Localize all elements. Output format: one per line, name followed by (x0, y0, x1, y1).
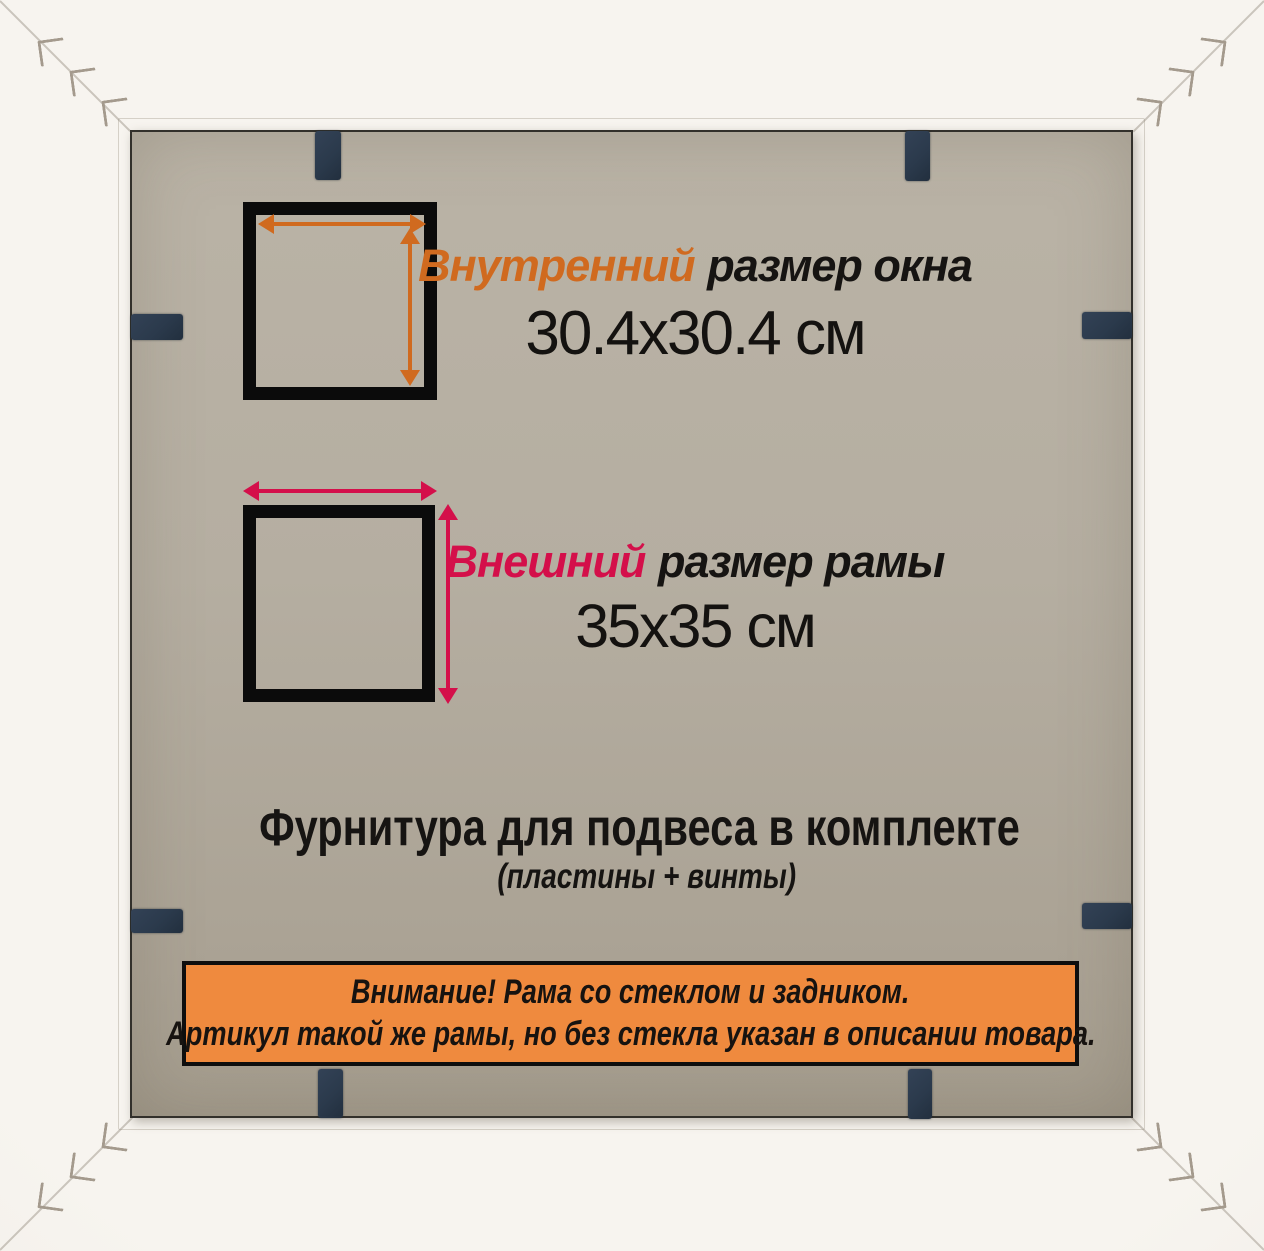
v-nail-staple-icon (1197, 1182, 1226, 1211)
v-nail-staple-icon (1197, 37, 1226, 66)
frame-clip-icon (905, 131, 930, 181)
v-nail-staple-icon (37, 37, 66, 66)
inner-size-label-rest: размер окна (707, 240, 972, 291)
attention-banner-line1: Внимание! Рама со стеклом и задником. (281, 974, 979, 1011)
v-nail-staple-icon (1165, 67, 1194, 96)
frame-clip-icon (908, 1069, 932, 1119)
outer-size-label: Внешнийразмер рамы (330, 537, 1060, 587)
attention-banner-line2: Артикул такой же рамы, но без стекла ука… (50, 1016, 1212, 1053)
outer-size-label-highlight: Внешний (446, 536, 646, 587)
v-nail-staple-icon (69, 67, 98, 96)
outer-size-value: 35x35 см (330, 596, 1060, 657)
frame-clip-icon (131, 314, 183, 340)
hardware-note-line2: (пластины + винты) (147, 858, 1147, 897)
inner-size-value: 30.4x30.4 см (330, 303, 1060, 365)
frame-clip-icon (1082, 312, 1132, 339)
inner-size-label: Внутреннийразмер окна (330, 241, 1060, 291)
frame-clip-icon (131, 909, 183, 933)
v-nail-staple-icon (1165, 1152, 1194, 1181)
hardware-note-line1: Фурнитура для подвеса в комплекте (140, 802, 1140, 854)
outer-width-arrow-icon (243, 481, 437, 501)
outer-size-label-rest: размер рамы (658, 536, 944, 587)
frame-clip-icon (315, 131, 341, 180)
v-nail-staple-icon (37, 1182, 66, 1211)
frame-clip-icon (1082, 903, 1132, 929)
frame-clip-icon (318, 1069, 343, 1118)
attention-banner: Внимание! Рама со стеклом и задником. Ар… (182, 961, 1079, 1066)
frame-product-photo: Внутреннийразмер окна 30.4x30.4 см Внешн… (0, 0, 1264, 1251)
inner-size-label-highlight: Внутренний (418, 240, 695, 291)
v-nail-staple-icon (69, 1152, 98, 1181)
